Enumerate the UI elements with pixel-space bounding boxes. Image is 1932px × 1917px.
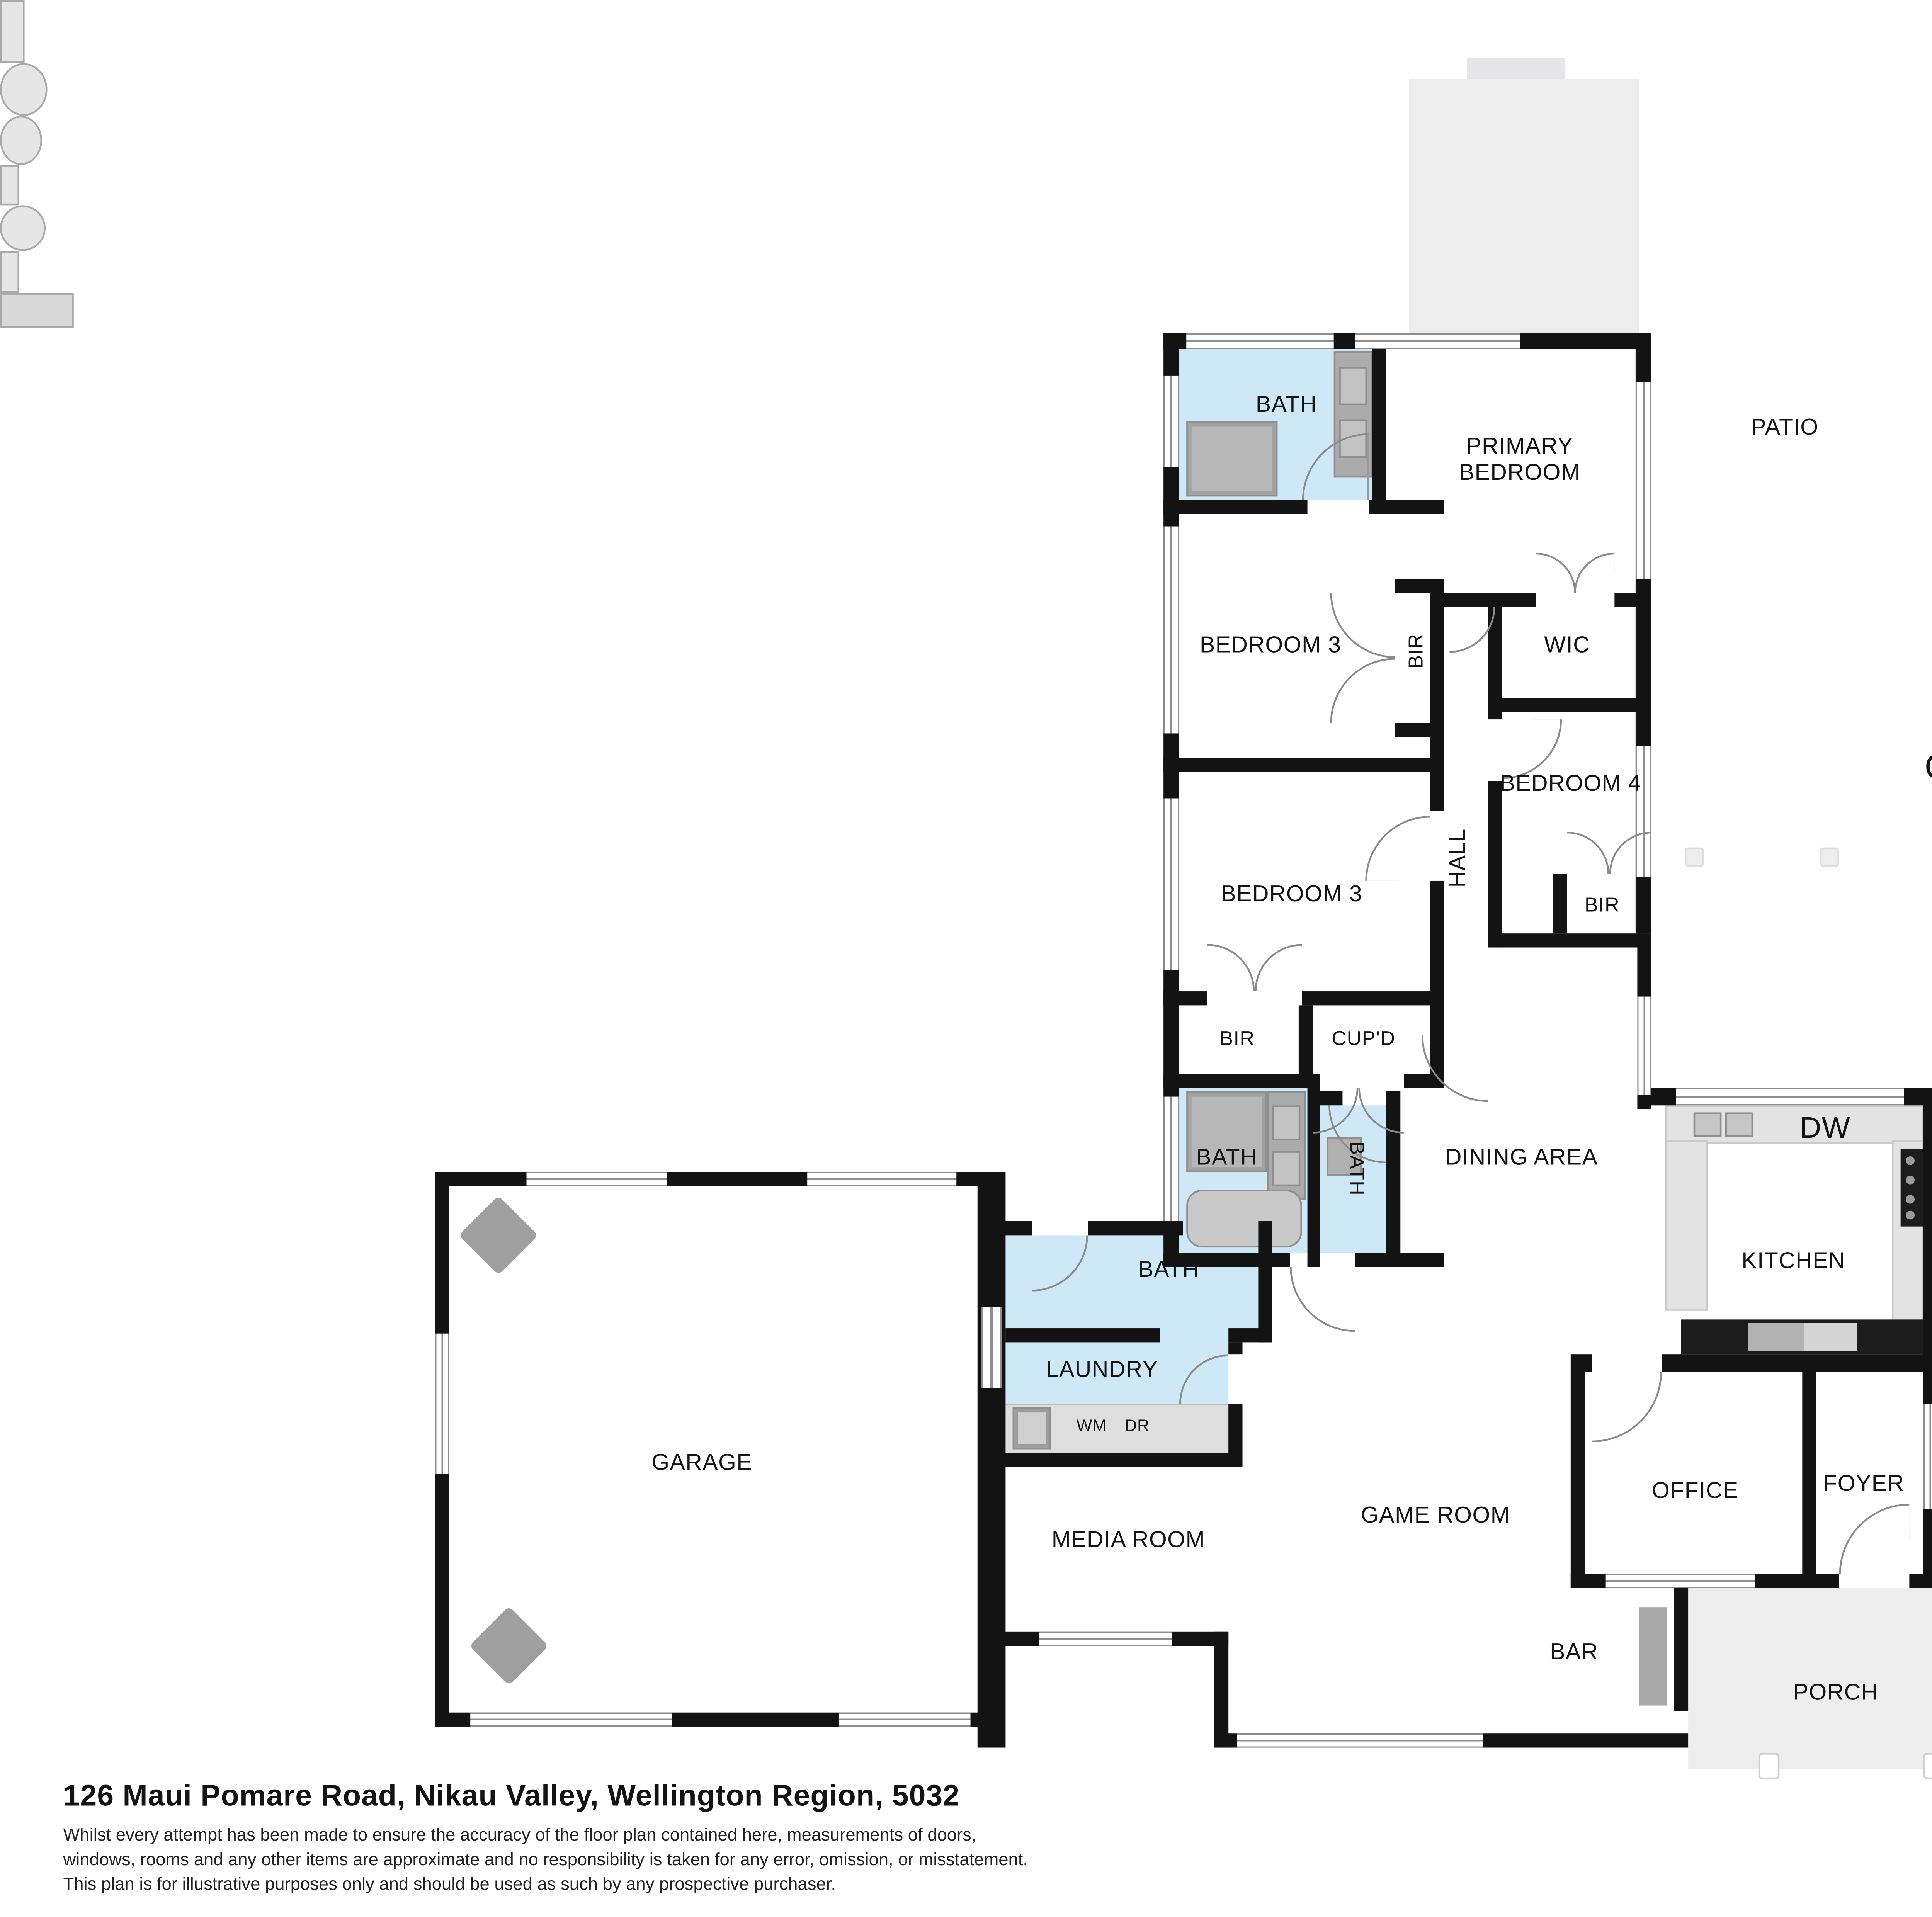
wall (1571, 1372, 1585, 1588)
disclaimer-line: Whilst every attempt has been made to en… (63, 1825, 1028, 1849)
room-label-bedroom3-upper: BEDROOM 3 (1200, 633, 1342, 658)
door-arc (1536, 553, 1576, 593)
window (1163, 527, 1179, 734)
wall (1228, 1342, 1242, 1354)
burner (1906, 1176, 1915, 1185)
wall (1163, 758, 1430, 772)
garage-post (459, 1196, 538, 1275)
room-label-game: GAME ROOM (1361, 1503, 1510, 1529)
property-address: 126 Maui Pomare Road, Nikau Valley, Well… (63, 1779, 1028, 1814)
window (981, 1307, 1002, 1388)
laundry-sink (1013, 1407, 1051, 1449)
room-label-kitchen: KITCHEN (1742, 1249, 1845, 1274)
door-arc (1207, 944, 1255, 991)
label-washing-machine: WM (1077, 1419, 1107, 1438)
room-label-cupboard: CUP'D (1332, 1029, 1396, 1052)
kitchen-sink-bowl (1694, 1112, 1722, 1137)
wall (1228, 1328, 1272, 1342)
toilet-tank (0, 165, 19, 205)
label-dryer: DR (1125, 1419, 1150, 1438)
room-label-covered-patio: COVERED PATIO (1925, 749, 1932, 788)
wall (1488, 698, 1651, 712)
door-arc (1567, 832, 1609, 874)
room-label-bath-guest: BATH (1138, 1258, 1200, 1283)
burner (1906, 1211, 1915, 1220)
wall (978, 1172, 1006, 1748)
wall (1404, 1074, 1430, 1088)
wall (1674, 1588, 1688, 1711)
disclaimer-line: windows, rooms and any other items are a… (63, 1850, 1028, 1875)
wall (1571, 1354, 1592, 1372)
wall (1488, 781, 1502, 947)
burner (1906, 1156, 1915, 1165)
toilet-bowl (0, 116, 42, 165)
wall (1163, 991, 1207, 1005)
wall (992, 1453, 1242, 1467)
door-arc (1592, 1372, 1662, 1443)
window (1355, 333, 1520, 349)
room-label-bedroom3-lower: BEDROOM 3 (1221, 882, 1362, 908)
kitchen-sink (0, 293, 74, 328)
wall (1369, 500, 1444, 514)
sliding-door (1636, 382, 1651, 579)
door-arc (1255, 944, 1302, 991)
room-label-bir-lower: BIR (1219, 1029, 1255, 1052)
wall (1923, 1088, 1932, 1372)
wall (1923, 1132, 1932, 1145)
porch-post (1759, 1753, 1780, 1779)
door-arc (1290, 1267, 1355, 1332)
wall (1802, 1372, 1816, 1588)
room-label-bar: BAR (1550, 1640, 1599, 1665)
wall (1372, 349, 1386, 500)
room-label-ensuite-bath: BATH (1256, 393, 1317, 418)
wall (1637, 933, 1651, 997)
door-arc (1609, 832, 1651, 874)
bathtub (1186, 1190, 1302, 1247)
window (807, 1172, 956, 1186)
floorplan-page: BATH PRIMARY BEDROOM PATIO BEDROOM 3 BIR… (0, 0, 1932, 1917)
sidelight (1923, 1404, 1932, 1509)
room-label-bath-small: BATH (1344, 1141, 1366, 1196)
shower (1186, 421, 1277, 496)
wall (1258, 1221, 1272, 1342)
toilet-bowl (0, 63, 48, 116)
kitchen-sink-bowl (1725, 1112, 1753, 1137)
room-label-hall: HALL (1446, 828, 1471, 887)
room-label-bath-main: BATH (1196, 1145, 1257, 1171)
room-label-primary-bedroom: PRIMARY BEDROOM (1459, 434, 1581, 485)
appliance (1804, 1323, 1857, 1351)
window (1606, 1574, 1755, 1588)
wall (1214, 1632, 1228, 1748)
door-arc (1330, 658, 1395, 723)
window (435, 1334, 449, 1474)
window (1163, 1097, 1179, 1229)
patio-slab-tab (1467, 58, 1565, 79)
wall (1614, 593, 1651, 607)
wall (1430, 579, 1444, 811)
window (527, 1172, 667, 1186)
window (1637, 997, 1651, 1095)
room-label-laundry: LAUNDRY (1046, 1358, 1158, 1383)
room-label-patio: PATIO (1751, 415, 1818, 441)
patio-post (1820, 848, 1839, 867)
wall (1662, 1354, 1932, 1372)
room-label-bir-upper: BIR (1406, 633, 1429, 668)
garage-post (469, 1606, 549, 1686)
room-label-garage: GARAGE (651, 1451, 752, 1476)
wall (1163, 500, 1307, 514)
wall (1553, 874, 1567, 933)
wall (1088, 1221, 1183, 1235)
appliance (1748, 1323, 1804, 1351)
porch-slab (1688, 1588, 1932, 1769)
door-arc (1365, 816, 1430, 881)
toilet-tank (0, 251, 19, 293)
patio-slab (1409, 79, 1639, 338)
disclaimer-line: This plan is for illustrative purposes o… (63, 1875, 1028, 1899)
room-label-dining: DINING AREA (1445, 1145, 1598, 1171)
wall (1651, 1088, 1676, 1105)
porch-post (1923, 1753, 1932, 1779)
footer: 126 Maui Pomare Road, Nikau Valley, Well… (63, 1779, 1028, 1899)
sink (1339, 367, 1367, 405)
disclaimer: Whilst every attempt has been made to en… (63, 1825, 1028, 1899)
door-arc (1574, 553, 1614, 593)
window (1186, 333, 1334, 349)
toilet-bowl (0, 205, 46, 251)
window (1163, 376, 1179, 467)
room-label-bedroom4: BEDROOM 4 (1500, 772, 1642, 797)
room-label-media: MEDIA ROOM (1052, 1528, 1205, 1553)
window (839, 1713, 971, 1727)
wall (1163, 1074, 1313, 1088)
room-label-foyer: FOYER (1823, 1472, 1904, 1497)
bar-counter (1639, 1607, 1667, 1705)
door-arc (1422, 1035, 1488, 1102)
floorplan: BATH PRIMARY BEDROOM PATIO BEDROOM 3 BIR… (0, 0, 1932, 1917)
sink (1272, 1105, 1301, 1140)
door-arc (1839, 1504, 1910, 1574)
room-label-porch: PORCH (1793, 1681, 1878, 1706)
window (1163, 798, 1179, 970)
patio-post (1685, 848, 1704, 867)
door-gap (1839, 1574, 1910, 1588)
wall (1636, 333, 1651, 382)
burner (1906, 1195, 1915, 1204)
label-dishwasher: DW (1800, 1111, 1850, 1145)
wall (1005, 1328, 1160, 1342)
window (1039, 1632, 1172, 1646)
wall (1302, 991, 1430, 1005)
room-label-bir-bedroom4: BIR (1585, 896, 1620, 918)
wall (1488, 933, 1651, 947)
wall (1637, 1095, 1651, 1109)
sliding-door (1237, 1733, 1483, 1747)
window (470, 1713, 672, 1727)
wall (1355, 1253, 1444, 1267)
sink (1272, 1151, 1301, 1186)
room-label-wic: WIC (1544, 633, 1590, 658)
toilet-tank (0, 0, 25, 63)
room-label-office: OFFICE (1652, 1479, 1739, 1504)
window (1676, 1088, 1904, 1105)
kitchen-counter-left (1665, 1140, 1708, 1311)
